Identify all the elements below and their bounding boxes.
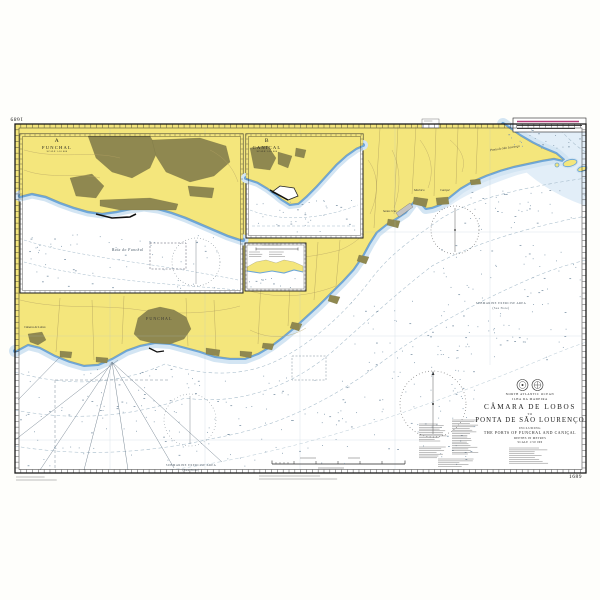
title-region-line1: NORTH ATLANTIC OCEAN bbox=[435, 392, 600, 396]
canical-label: Caniçal bbox=[440, 189, 450, 192]
inset-funchal-letter: A bbox=[42, 138, 72, 144]
title-subtitle: THE PORTS OF FUNCHAL AND CANIÇAL bbox=[435, 431, 600, 435]
title-region-line2: ILHA DA MADEIRA bbox=[435, 397, 600, 401]
inset-funchal-scale: SCALE 1:10 000 bbox=[42, 150, 72, 153]
title-including: INCLUDING bbox=[435, 426, 600, 430]
title-depths-note: DEPTHS IN METRES bbox=[435, 437, 600, 440]
inset-continuation bbox=[245, 243, 306, 291]
title-connector: TO bbox=[435, 412, 600, 416]
submarine-area-south-line1: SUBMARINE EXERCISE AREA bbox=[166, 464, 216, 467]
nautical-chart-artwork bbox=[0, 0, 600, 600]
source-note-box bbox=[513, 118, 586, 132]
inset-funchal-name: FUNCHAL bbox=[42, 145, 72, 150]
chart-number-bottom-right: 1689 bbox=[569, 475, 582, 481]
title-line2: PONTA DE SÃO LOURENÇO bbox=[435, 417, 600, 424]
page: { "chart_number": "1689", "title_block":… bbox=[0, 0, 600, 600]
chart-number-top-left: 1689 bbox=[10, 115, 23, 121]
inset-canical-name: CANIÇAL bbox=[253, 145, 282, 150]
submarine-area-east-line2: (See Note) bbox=[493, 307, 510, 310]
funchal-city-label: FUNCHAL bbox=[146, 317, 173, 321]
submarine-area-east-line1: SUBMARINE EXERCISE AREA bbox=[476, 302, 526, 305]
submarine-area-south-line2: (See Note) bbox=[183, 469, 200, 472]
inset-funchal-title: A FUNCHAL SCALE 1:10 000 bbox=[42, 138, 72, 153]
camara-de-lobos-label: Câmara de Lobos bbox=[24, 326, 46, 329]
santa-cruz-label: Santa Cruz bbox=[383, 210, 396, 213]
machico-label: Machico bbox=[414, 189, 425, 192]
inset-funchal bbox=[20, 134, 243, 293]
title-line1: CÂMARA DE LOBOS bbox=[435, 403, 600, 411]
title-scale-note: SCALE 1:50 000 bbox=[435, 441, 600, 444]
funchal-bay-label: Baía do Funchal bbox=[112, 249, 144, 253]
inset-canical-title: B CANIÇAL SCALE 1:10 000 bbox=[253, 138, 282, 153]
inset-canical-scale: SCALE 1:10 000 bbox=[253, 150, 282, 153]
chart-sheet: 1689 1689 A FUNCHAL SCALE 1:10 000 B CAN… bbox=[0, 0, 600, 600]
canical-area bbox=[436, 197, 449, 205]
inset-canical-letter: B bbox=[253, 138, 282, 144]
title-block: NORTH ATLANTIC OCEAN ILHA DA MADEIRA CÂM… bbox=[435, 379, 600, 445]
